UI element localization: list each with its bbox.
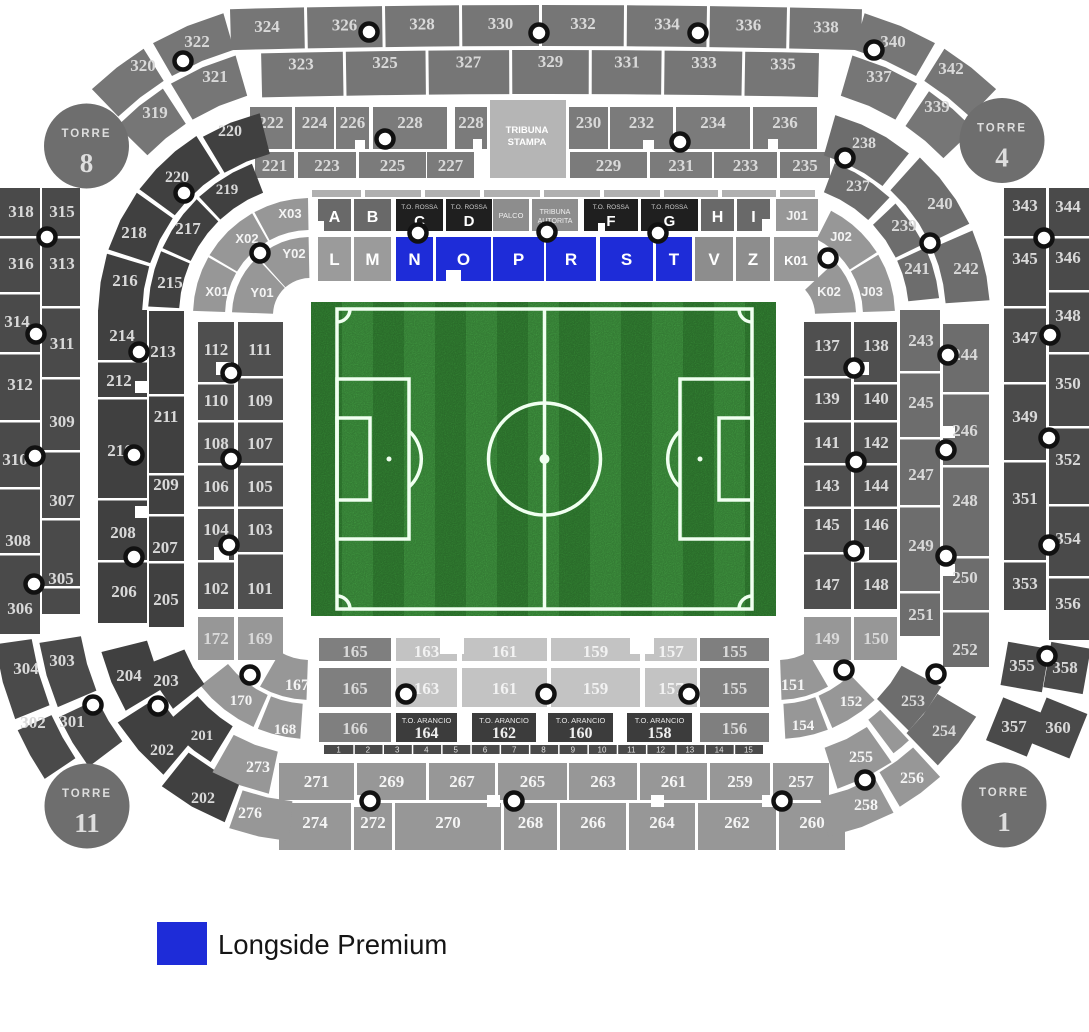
svg-text:204: 204: [116, 666, 142, 685]
svg-text:A: A: [329, 209, 341, 226]
svg-text:267: 267: [449, 772, 475, 791]
svg-text:301: 301: [59, 712, 85, 731]
svg-text:271: 271: [304, 772, 330, 791]
svg-text:263: 263: [590, 772, 616, 791]
svg-text:225: 225: [380, 156, 406, 175]
svg-text:161: 161: [492, 642, 518, 661]
svg-text:J01: J01: [786, 208, 808, 223]
svg-text:J03: J03: [861, 284, 883, 299]
svg-text:2: 2: [366, 746, 371, 755]
svg-text:13: 13: [685, 746, 694, 755]
svg-text:149: 149: [814, 629, 840, 648]
svg-text:303: 303: [49, 651, 75, 670]
svg-text:240: 240: [927, 194, 953, 213]
svg-text:274: 274: [302, 813, 328, 832]
svg-text:266: 266: [580, 813, 606, 832]
svg-text:166: 166: [342, 719, 368, 738]
svg-text:B: B: [367, 209, 379, 226]
svg-text:260: 260: [799, 813, 825, 832]
svg-text:312: 312: [7, 375, 33, 394]
svg-text:12: 12: [656, 746, 665, 755]
svg-text:311: 311: [50, 334, 75, 353]
svg-text:144: 144: [863, 476, 889, 495]
svg-text:T: T: [669, 250, 680, 269]
svg-text:TRIBUNA: TRIBUNA: [506, 125, 549, 136]
svg-text:331: 331: [614, 52, 640, 71]
svg-text:161: 161: [492, 679, 518, 698]
svg-text:TORRE: TORRE: [61, 128, 111, 140]
svg-text:321: 321: [202, 67, 228, 86]
svg-text:T.O. ROSSA: T.O. ROSSA: [593, 204, 630, 211]
svg-text:326: 326: [332, 16, 358, 35]
svg-text:209: 209: [153, 475, 179, 494]
svg-text:206: 206: [111, 582, 137, 601]
svg-text:148: 148: [863, 575, 889, 594]
svg-text:356: 356: [1055, 594, 1081, 613]
svg-text:1: 1: [336, 746, 341, 755]
svg-text:141: 141: [814, 433, 840, 452]
svg-text:103: 103: [247, 520, 273, 539]
svg-text:11: 11: [627, 746, 636, 755]
svg-text:307: 307: [49, 491, 75, 510]
svg-text:M: M: [365, 250, 379, 269]
svg-text:164: 164: [415, 725, 439, 742]
svg-text:314: 314: [4, 312, 30, 331]
svg-text:N: N: [408, 250, 420, 269]
svg-text:304: 304: [13, 659, 39, 678]
svg-text:245: 245: [908, 393, 934, 412]
svg-text:237: 237: [846, 178, 870, 195]
svg-text:350: 350: [1055, 374, 1081, 393]
svg-text:257: 257: [788, 772, 814, 791]
svg-text:11: 11: [74, 808, 100, 838]
svg-text:315: 315: [49, 202, 75, 221]
svg-text:203: 203: [153, 671, 179, 690]
svg-text:318: 318: [8, 202, 34, 221]
svg-text:143: 143: [814, 476, 840, 495]
svg-text:172: 172: [203, 629, 229, 648]
svg-text:165: 165: [342, 679, 368, 698]
svg-text:332: 332: [570, 14, 596, 33]
svg-text:105: 105: [247, 477, 273, 496]
svg-text:268: 268: [518, 813, 544, 832]
svg-text:159: 159: [583, 642, 609, 661]
svg-text:106: 106: [203, 477, 229, 496]
svg-text:261: 261: [661, 772, 687, 791]
svg-text:330: 330: [488, 14, 514, 33]
svg-text:4: 4: [424, 746, 429, 755]
svg-text:348: 348: [1055, 306, 1081, 325]
svg-text:208: 208: [110, 523, 136, 542]
svg-text:335: 335: [770, 54, 796, 73]
svg-text:302: 302: [20, 713, 46, 732]
svg-text:319: 319: [142, 103, 168, 122]
svg-text:220: 220: [218, 123, 242, 140]
svg-text:235: 235: [792, 156, 818, 175]
svg-text:355: 355: [1009, 656, 1035, 675]
svg-text:10: 10: [598, 746, 607, 755]
svg-text:347: 347: [1012, 328, 1038, 347]
svg-text:150: 150: [863, 629, 889, 648]
svg-text:205: 205: [153, 590, 179, 609]
svg-text:1: 1: [997, 807, 1011, 837]
svg-text:227: 227: [438, 156, 464, 175]
svg-text:243: 243: [908, 331, 934, 350]
svg-text:167: 167: [285, 677, 309, 694]
svg-text:259: 259: [727, 772, 753, 791]
svg-text:109: 109: [247, 391, 273, 410]
svg-text:329: 329: [538, 52, 564, 71]
svg-text:270: 270: [435, 813, 461, 832]
svg-text:168: 168: [274, 722, 297, 738]
svg-text:246: 246: [952, 421, 978, 440]
svg-text:248: 248: [952, 491, 978, 510]
svg-text:4: 4: [995, 143, 1009, 173]
svg-text:247: 247: [908, 465, 934, 484]
svg-text:R: R: [565, 250, 577, 269]
svg-text:140: 140: [863, 389, 889, 408]
svg-text:K02: K02: [817, 284, 841, 299]
svg-text:202: 202: [191, 790, 215, 807]
svg-text:231: 231: [668, 156, 694, 175]
svg-text:107: 107: [247, 434, 273, 453]
svg-text:163: 163: [414, 679, 440, 698]
svg-text:111: 111: [248, 340, 272, 359]
svg-text:333: 333: [691, 53, 717, 72]
svg-text:272: 272: [360, 813, 386, 832]
svg-text:169: 169: [247, 629, 273, 648]
svg-text:264: 264: [649, 813, 675, 832]
svg-text:15: 15: [744, 746, 753, 755]
svg-text:236: 236: [772, 113, 798, 132]
svg-text:H: H: [712, 209, 724, 226]
svg-text:8: 8: [80, 148, 94, 178]
svg-text:336: 336: [736, 16, 762, 35]
svg-text:K01: K01: [784, 253, 808, 268]
svg-text:146: 146: [863, 515, 889, 534]
svg-text:338: 338: [813, 17, 839, 36]
svg-text:346: 346: [1055, 248, 1081, 267]
svg-text:232: 232: [629, 113, 655, 132]
svg-text:238: 238: [852, 135, 876, 152]
svg-text:223: 223: [314, 156, 340, 175]
svg-text:162: 162: [492, 725, 516, 742]
svg-text:308: 308: [5, 531, 31, 550]
svg-text:219: 219: [216, 182, 239, 198]
svg-text:155: 155: [722, 679, 748, 698]
svg-text:276: 276: [238, 805, 262, 822]
svg-text:157: 157: [658, 642, 684, 661]
svg-text:249: 249: [908, 536, 934, 555]
svg-text:254: 254: [932, 723, 956, 740]
svg-text:320: 320: [130, 56, 156, 75]
svg-text:324: 324: [254, 17, 280, 36]
svg-text:TRIBUNA: TRIBUNA: [540, 209, 571, 216]
svg-text:TORRE: TORRE: [977, 123, 1027, 135]
svg-text:Y02: Y02: [282, 246, 305, 261]
svg-text:212: 212: [106, 371, 132, 390]
svg-text:T.O. ARANCIO: T.O. ARANCIO: [556, 716, 606, 725]
svg-text:269: 269: [379, 772, 405, 791]
svg-text:6: 6: [483, 746, 488, 755]
svg-text:TORRE: TORRE: [62, 788, 112, 800]
svg-text:241: 241: [904, 259, 930, 278]
svg-text:X03: X03: [278, 206, 301, 221]
svg-text:165: 165: [342, 642, 368, 661]
svg-text:211: 211: [154, 407, 179, 426]
svg-text:262: 262: [724, 813, 750, 832]
svg-text:353: 353: [1012, 574, 1038, 593]
svg-text:339: 339: [924, 97, 950, 116]
svg-text:256: 256: [900, 770, 924, 787]
svg-text:Y01: Y01: [250, 285, 273, 300]
svg-text:351: 351: [1012, 489, 1038, 508]
svg-text:258: 258: [854, 797, 878, 814]
svg-text:T.O. ROSSA: T.O. ROSSA: [401, 204, 438, 211]
svg-text:234: 234: [700, 113, 726, 132]
svg-text:L: L: [329, 250, 339, 269]
svg-text:147: 147: [814, 575, 840, 594]
svg-text:P: P: [513, 250, 524, 269]
svg-text:221: 221: [262, 156, 288, 175]
svg-text:101: 101: [247, 579, 273, 598]
svg-text:PALCO: PALCO: [499, 211, 524, 220]
svg-text:344: 344: [1055, 197, 1081, 216]
svg-text:V: V: [708, 250, 720, 269]
svg-text:273: 273: [246, 759, 270, 776]
svg-text:213: 213: [150, 342, 176, 361]
svg-text:207: 207: [152, 538, 178, 557]
svg-text:151: 151: [781, 677, 805, 694]
svg-text:T.O. ROSSA: T.O. ROSSA: [651, 204, 688, 211]
svg-text:253: 253: [901, 693, 925, 710]
svg-text:250: 250: [952, 568, 978, 587]
svg-text:STAMPA: STAMPA: [508, 137, 547, 148]
svg-text:Z: Z: [748, 250, 758, 269]
svg-text:160: 160: [569, 725, 593, 742]
svg-text:T.O. ARANCIO: T.O. ARANCIO: [479, 716, 529, 725]
svg-text:337: 337: [866, 67, 892, 86]
svg-text:Longside Premium: Longside Premium: [218, 929, 447, 960]
svg-text:328: 328: [409, 15, 435, 34]
svg-text:224: 224: [302, 113, 328, 132]
svg-text:310: 310: [2, 450, 28, 469]
svg-text:T.O. ARANCIO: T.O. ARANCIO: [402, 716, 452, 725]
svg-text:349: 349: [1012, 407, 1038, 426]
svg-text:334: 334: [654, 15, 680, 34]
svg-text:158: 158: [648, 725, 672, 742]
svg-text:342: 342: [938, 59, 964, 78]
svg-text:137: 137: [814, 336, 840, 355]
svg-text:343: 343: [1012, 196, 1038, 215]
svg-text:357: 357: [1001, 717, 1027, 736]
svg-text:255: 255: [849, 749, 873, 766]
svg-text:239: 239: [891, 216, 917, 235]
svg-text:T.O. ROSSA: T.O. ROSSA: [451, 204, 488, 211]
svg-text:159: 159: [583, 679, 609, 698]
svg-text:306: 306: [7, 599, 33, 618]
svg-text:155: 155: [722, 642, 748, 661]
svg-text:D: D: [464, 213, 475, 230]
svg-text:7: 7: [512, 746, 517, 755]
svg-text:309: 309: [49, 412, 75, 431]
svg-text:327: 327: [456, 52, 482, 71]
svg-text:201: 201: [191, 728, 214, 744]
svg-text:325: 325: [372, 53, 398, 72]
svg-text:152: 152: [840, 694, 863, 710]
svg-text:170: 170: [230, 693, 253, 709]
svg-text:313: 313: [49, 254, 75, 273]
svg-text:305: 305: [48, 569, 74, 588]
svg-text:138: 138: [863, 336, 889, 355]
svg-text:345: 345: [1012, 249, 1038, 268]
svg-text:360: 360: [1045, 718, 1071, 737]
svg-text:110: 110: [204, 391, 229, 410]
svg-text:352: 352: [1055, 450, 1081, 469]
svg-text:9: 9: [571, 746, 576, 755]
svg-text:154: 154: [792, 718, 815, 734]
svg-text:251: 251: [908, 605, 934, 624]
svg-text:112: 112: [204, 340, 229, 359]
svg-text:216: 216: [112, 271, 138, 290]
svg-text:139: 139: [814, 389, 840, 408]
svg-text:T.O. ARANCIO: T.O. ARANCIO: [635, 716, 685, 725]
svg-text:202: 202: [150, 742, 174, 759]
svg-text:242: 242: [953, 259, 979, 278]
svg-text:233: 233: [733, 156, 759, 175]
svg-text:142: 142: [863, 433, 889, 452]
svg-text:252: 252: [952, 640, 978, 659]
svg-text:218: 218: [121, 223, 147, 242]
svg-text:214: 214: [109, 326, 135, 345]
svg-text:215: 215: [157, 273, 183, 292]
svg-text:145: 145: [814, 515, 840, 534]
svg-text:156: 156: [722, 719, 748, 738]
svg-text:228: 228: [458, 113, 484, 132]
svg-text:323: 323: [288, 55, 314, 74]
svg-text:I: I: [751, 209, 755, 226]
svg-text:229: 229: [596, 156, 622, 175]
svg-text:3: 3: [395, 746, 400, 755]
svg-text:8: 8: [541, 746, 546, 755]
svg-text:O: O: [457, 250, 470, 269]
svg-text:322: 322: [184, 32, 210, 51]
svg-text:163: 163: [414, 642, 440, 661]
svg-text:265: 265: [520, 772, 546, 791]
svg-text:X01: X01: [205, 284, 228, 299]
svg-text:217: 217: [175, 219, 201, 238]
svg-text:J02: J02: [830, 229, 852, 244]
svg-text:TORRE: TORRE: [979, 787, 1029, 799]
svg-text:14: 14: [715, 746, 724, 755]
svg-text:5: 5: [453, 746, 458, 755]
svg-text:316: 316: [8, 254, 34, 273]
svg-text:F: F: [606, 213, 615, 230]
svg-text:230: 230: [576, 113, 602, 132]
svg-text:226: 226: [340, 113, 366, 132]
svg-text:228: 228: [397, 113, 423, 132]
svg-text:S: S: [621, 250, 632, 269]
svg-text:102: 102: [203, 579, 229, 598]
